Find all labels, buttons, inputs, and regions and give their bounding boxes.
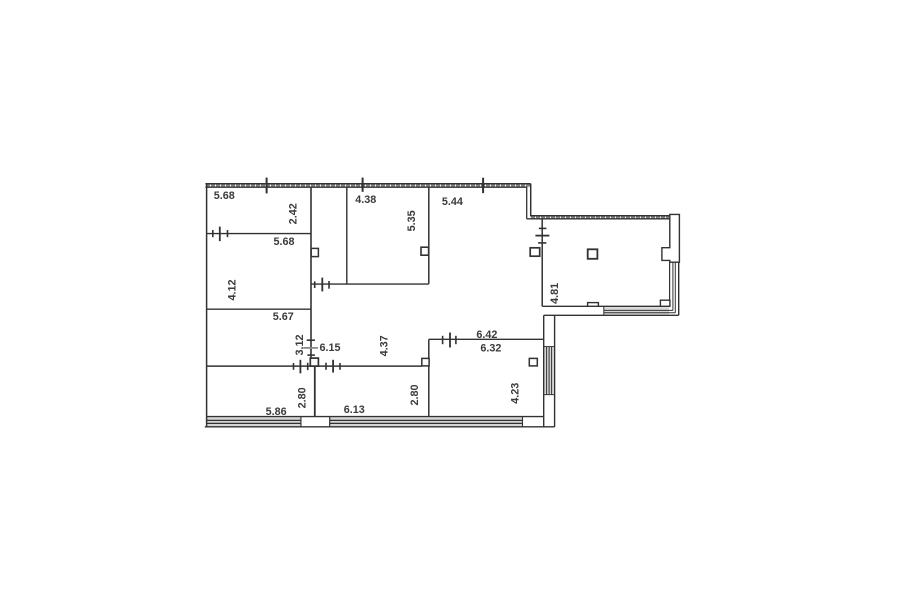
svg-text:6.42: 6.42 — [476, 329, 497, 341]
svg-text:6.15: 6.15 — [319, 342, 340, 354]
svg-text:5.68: 5.68 — [273, 236, 294, 248]
svg-text:2.80: 2.80 — [297, 387, 309, 408]
svg-text:6.32: 6.32 — [480, 343, 501, 355]
svg-text:5.86: 5.86 — [266, 406, 287, 418]
svg-text:5.67: 5.67 — [273, 311, 294, 323]
svg-text:5.44: 5.44 — [442, 196, 463, 208]
svg-text:2.80: 2.80 — [409, 384, 421, 405]
svg-text:4.81: 4.81 — [549, 283, 561, 304]
svg-text:5.68: 5.68 — [214, 190, 235, 202]
svg-text:5.35: 5.35 — [406, 210, 418, 231]
svg-text:2.42: 2.42 — [288, 203, 300, 224]
svg-text:3.12: 3.12 — [294, 334, 306, 355]
svg-text:4.12: 4.12 — [226, 279, 238, 300]
svg-text:4.23: 4.23 — [510, 383, 522, 404]
svg-text:6.13: 6.13 — [344, 404, 365, 416]
svg-text:4.38: 4.38 — [355, 194, 376, 206]
svg-text:4.37: 4.37 — [378, 335, 390, 356]
